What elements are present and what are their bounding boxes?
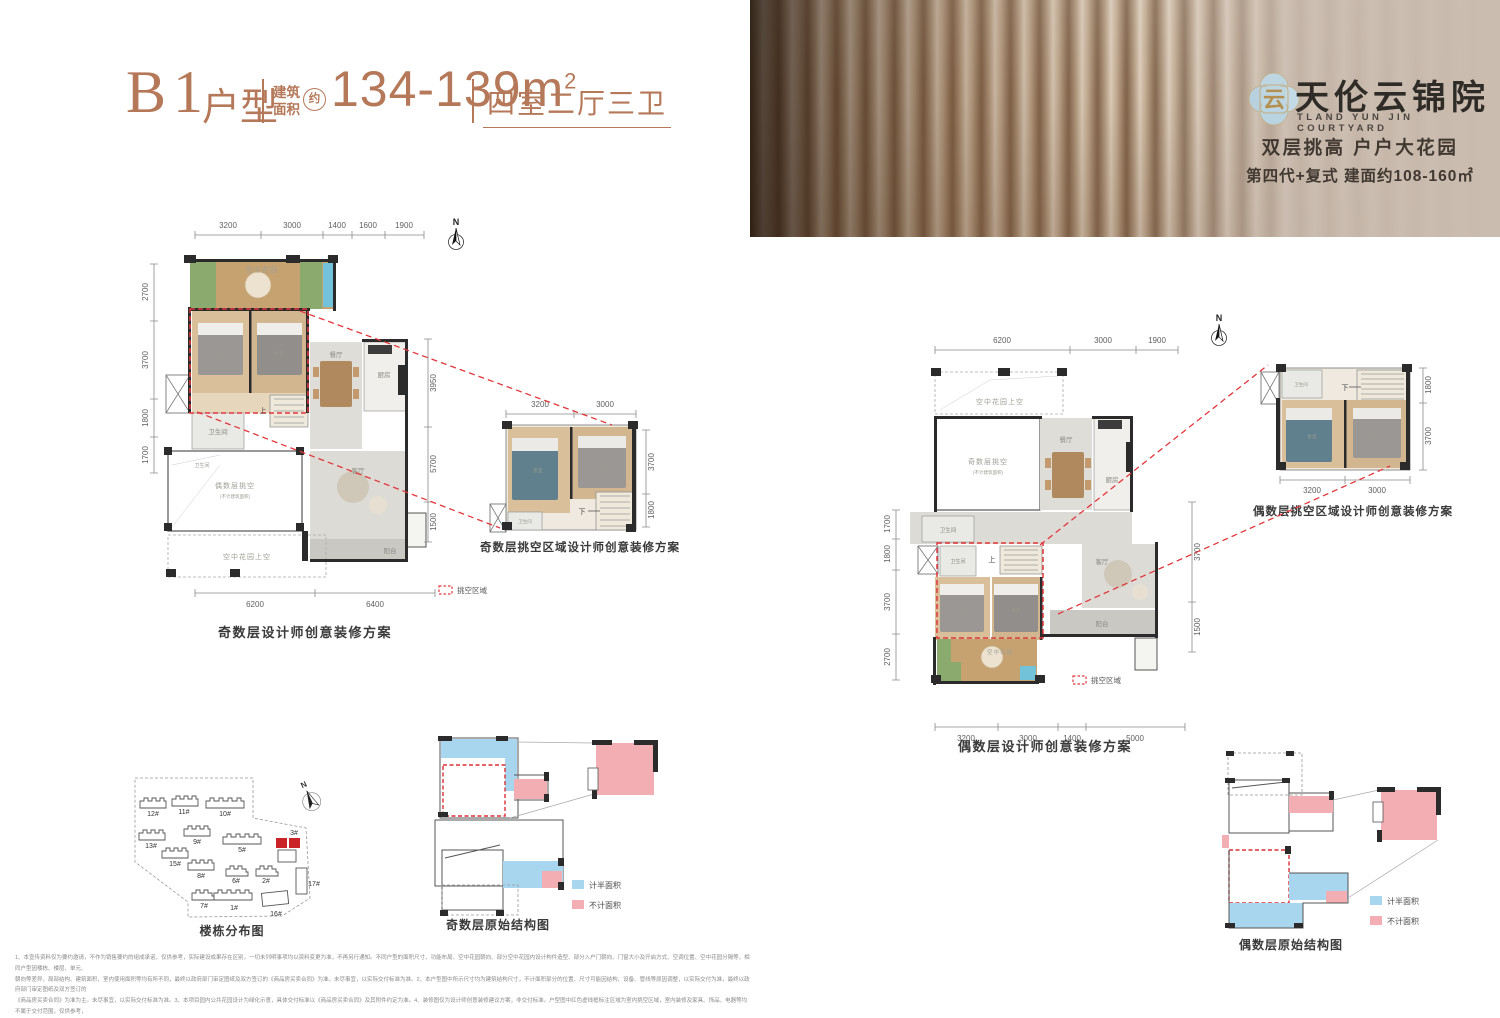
dim-label: 1500 [1193, 618, 1202, 636]
odd-plan-caption: 奇数层设计师创意装修方案 [160, 622, 450, 641]
half-area-region-2 [1229, 903, 1303, 928]
dim-label: 1800 [1424, 376, 1433, 394]
room-label-bath1: 卫生间 [940, 526, 957, 534]
room-label-bath1: 卫生间 [208, 427, 228, 436]
building-label: 15# [169, 861, 181, 868]
room-label-bed2: 卧室 [275, 350, 284, 357]
dim-label: 3700 [1193, 543, 1202, 561]
dim-label: 3000 [1368, 486, 1386, 495]
legend-swatch-excluded [572, 900, 584, 909]
odd-structure-caption: 奇数层原始结构图 [418, 916, 578, 933]
dim-label: 2700 [883, 648, 892, 666]
building-label: 1# [230, 905, 238, 912]
void-outline-red [443, 765, 505, 816]
dim-label: 3000 [1094, 336, 1112, 345]
building-label: 11# [178, 809, 189, 816]
brand-subline: 第四代+复式 建面约108-160㎡ [1220, 164, 1500, 186]
dim-label: 5700 [429, 455, 438, 473]
dim-label: 1900 [395, 221, 413, 230]
dim-label: 3700 [141, 351, 150, 369]
room-label-living: 客厅 [1096, 557, 1110, 566]
excluded-area-region [1289, 796, 1333, 813]
detached-excluded-square [588, 740, 658, 799]
room-label-void-sub: (不计建筑面积) [973, 469, 1003, 476]
even-floor-plan: 空中花园上空 奇数层挑空 (不计建筑面积) 餐厅 厨房 卫生间 卫生间 卧室 卧… [880, 312, 1250, 757]
dim-label: 6400 [366, 600, 384, 609]
room-label-garden-above: 空中花园上空 [976, 397, 1024, 406]
building-label: 6# [232, 878, 240, 885]
area-label: 建筑 面积 [273, 84, 300, 118]
site-map-caption: 楼栋分布图 [152, 922, 312, 939]
dim-label: 3950 [429, 374, 438, 392]
odd-floor-plan: 空中花园 卧室 卧室 卫生间 卫生间 餐厅 厨房 客厅 阳台 偶数层挑空 (不计… [140, 215, 485, 640]
logo-cloud-glyph: 云 [1263, 87, 1285, 112]
room-label-stair-up: 上 [260, 406, 267, 415]
room-label-bath2: 卫生间 [194, 462, 209, 469]
room-label-void: 奇数层挑空 [968, 457, 1008, 466]
room-label-stair-down: 下 [579, 508, 586, 516]
dim-label: 3200 [219, 221, 237, 230]
room-label-balcony: 阳台 [1096, 619, 1109, 628]
void-legend-swatch [439, 586, 452, 594]
compass-n-label: N [299, 779, 308, 790]
disclaimer-line: 1、本宣传资料仅为要约邀请，不作为销售要约的组成承诺，仅供参考，实际建设成果存在… [15, 953, 752, 975]
even-loft-caption: 偶数层挑空区域设计师创意装修方案 [1228, 503, 1478, 519]
dim-label: 1400 [328, 221, 346, 230]
legend-swatch-half [1370, 896, 1382, 905]
highlighted-building-3 [276, 838, 300, 848]
area-label-line1: 建筑 [273, 84, 300, 101]
dim-label: 3700 [1424, 427, 1433, 445]
room-label-bed1: 卧室 [958, 607, 967, 614]
disclaimer-line: 《商品房买卖合同》为准为主。未尽事宜，以实际交付标准为准。3、本项目园内公共花园… [15, 996, 752, 1018]
detached-excluded-square [1373, 787, 1441, 842]
dim-label: 6200 [993, 336, 1011, 345]
structure-posts [1226, 751, 1294, 756]
dim-label: 2700 [141, 283, 150, 301]
building-label: 8# [197, 873, 205, 880]
dim-label: 3000 [596, 400, 614, 409]
title-divider [262, 79, 264, 123]
room-label-stair-up: 上 [989, 555, 996, 564]
legend-swatch-half [572, 880, 584, 889]
building-label-highlighted: 3# [290, 830, 298, 837]
excluded-area-region [514, 779, 547, 799]
dim-label: 1800 [141, 409, 150, 427]
even-loft-plan: 卫生间 下 卧室 卧室 1800 3700 3200 3000 [1245, 358, 1460, 503]
legend-swatch-excluded [1370, 916, 1382, 925]
garden-above-dashed [1228, 753, 1302, 795]
even-loft-rooms [1261, 368, 1410, 470]
room-label-garden-above: 空中花园上空 [223, 552, 271, 561]
odd-loft-caption: 奇数层挑空区域设计师创意装修方案 [455, 539, 705, 555]
disclaimer-block: 1、本宣传资料仅为要约邀请，不作为销售要约的组成承诺，仅供参考，实际建设成果存在… [15, 953, 752, 1018]
excluded-area-region-2 [1326, 891, 1347, 903]
room-label-bed1: 卧室 [1308, 433, 1317, 440]
dim-label: 3000 [283, 221, 301, 230]
building-label: 13# [145, 843, 157, 850]
building-label: 7# [200, 903, 208, 910]
room-label-stair-down: 下 [1342, 384, 1349, 392]
building-label: 9# [193, 839, 201, 846]
room-label-void: 偶数层挑空 [215, 481, 255, 490]
site-compass-icon: N [294, 777, 324, 814]
odd-structure-diagram: 计半面积 不计面积 [420, 698, 675, 933]
void-legend-label: 挑空区域 [1091, 675, 1121, 685]
site-map: 12# 11# 10# 13# 9# 5# 3# 15# 8# 6# 2# 7#… [120, 740, 360, 940]
room-label-garden: 空中花园 [987, 648, 1013, 656]
rooms-summary: 四室二厅三卫 [483, 82, 671, 128]
disclaimer-line: 朝向等差异，局部结构、建筑面积、室内使用面积等均有所不同，最终以政府部门审定图纸… [15, 975, 752, 997]
dim-label: 1700 [141, 446, 150, 464]
dim-label: 3200 [531, 400, 549, 409]
plan-code: B1 [126, 58, 210, 127]
brochure-page: B1 户型 建筑 面积 约 134-139m2 四室二厅三卫 云 天伦云锦院 T… [0, 0, 1500, 1018]
room-label-bed1: 卧室 [534, 467, 543, 474]
brand-banner: 云 天伦云锦院 TLAND YUN JIN COURTYARD 双层挑高 户户大… [750, 0, 1500, 237]
even-plan-caption: 偶数层设计师创意装修方案 [900, 736, 1190, 755]
plan-type-label: 户型 [202, 76, 278, 131]
room-label-bed2: 卧室 [1373, 433, 1382, 440]
dim-label: 3700 [647, 453, 656, 471]
brand-tagline: 双层挑高 户户大花园 [1234, 134, 1486, 160]
room-label-living: 客厅 [352, 466, 366, 475]
odd-loft-rooms [490, 425, 636, 532]
building-label: 5# [238, 847, 246, 854]
legend-label-excluded: 不计面积 [1387, 916, 1419, 926]
legend-label-half: 计半面积 [589, 880, 621, 890]
building-label: 2# [262, 878, 270, 885]
brand-logo-icon: 云 [1247, 70, 1301, 128]
building-label: 10# [219, 811, 231, 818]
building-label: 16# [270, 911, 282, 918]
area-label-line2: 面积 [273, 101, 300, 118]
dim-label: 1900 [1148, 336, 1166, 345]
room-label-dining: 餐厅 [330, 350, 344, 359]
brand-name-en: TLAND YUN JIN COURTYARD [1297, 112, 1500, 134]
legend-label-half: 计半面积 [1387, 896, 1419, 906]
approx-badge: 约 [303, 88, 326, 111]
dim-label: 1800 [883, 545, 892, 563]
room-label-kitchen: 厨房 [1106, 475, 1119, 484]
room-label-bath2: 卫生间 [950, 558, 965, 565]
void-legend-label: 挑空区域 [457, 585, 487, 595]
room-label-bath: 卫生间 [518, 518, 532, 525]
room-label-garden: 空中花园 [246, 265, 278, 274]
room-label-bed2: 卧室 [1012, 607, 1021, 614]
even-structure-caption: 偶数层原始结构图 [1211, 936, 1371, 953]
excluded-area-small [1222, 835, 1229, 848]
dim-label: 3200 [1303, 486, 1321, 495]
dim-label: 1700 [883, 515, 892, 533]
room-label-bed2: 卧室 [600, 463, 609, 470]
void-legend-swatch [1073, 676, 1086, 684]
room-label-kitchen: 厨房 [378, 370, 391, 379]
building-label: 17# [308, 881, 320, 888]
odd-loft-plan: 卧室 卧室 卫生间 下 3200 3000 3700 1800 [478, 392, 683, 552]
room-label-dining: 餐厅 [1060, 435, 1074, 444]
room-label-bath: 卫生间 [1294, 381, 1308, 388]
dim-label: 6200 [246, 600, 264, 609]
room-label-balcony: 阳台 [384, 546, 397, 555]
room-label-bed1: 卧室 [216, 350, 225, 357]
legend-label-excluded: 不计面积 [589, 900, 621, 910]
dim-label: 1800 [647, 501, 656, 519]
dim-label: 1600 [359, 221, 377, 230]
dim-label: 1500 [429, 513, 438, 531]
title-divider-2 [472, 79, 474, 123]
dim-label: 3700 [883, 593, 892, 611]
building-label: 12# [147, 811, 159, 818]
room-label-void-sub: (不计建筑面积) [220, 493, 250, 500]
even-structure-diagram: 计半面积 不计面积 [1200, 718, 1460, 963]
void-outline-red [1229, 850, 1289, 903]
